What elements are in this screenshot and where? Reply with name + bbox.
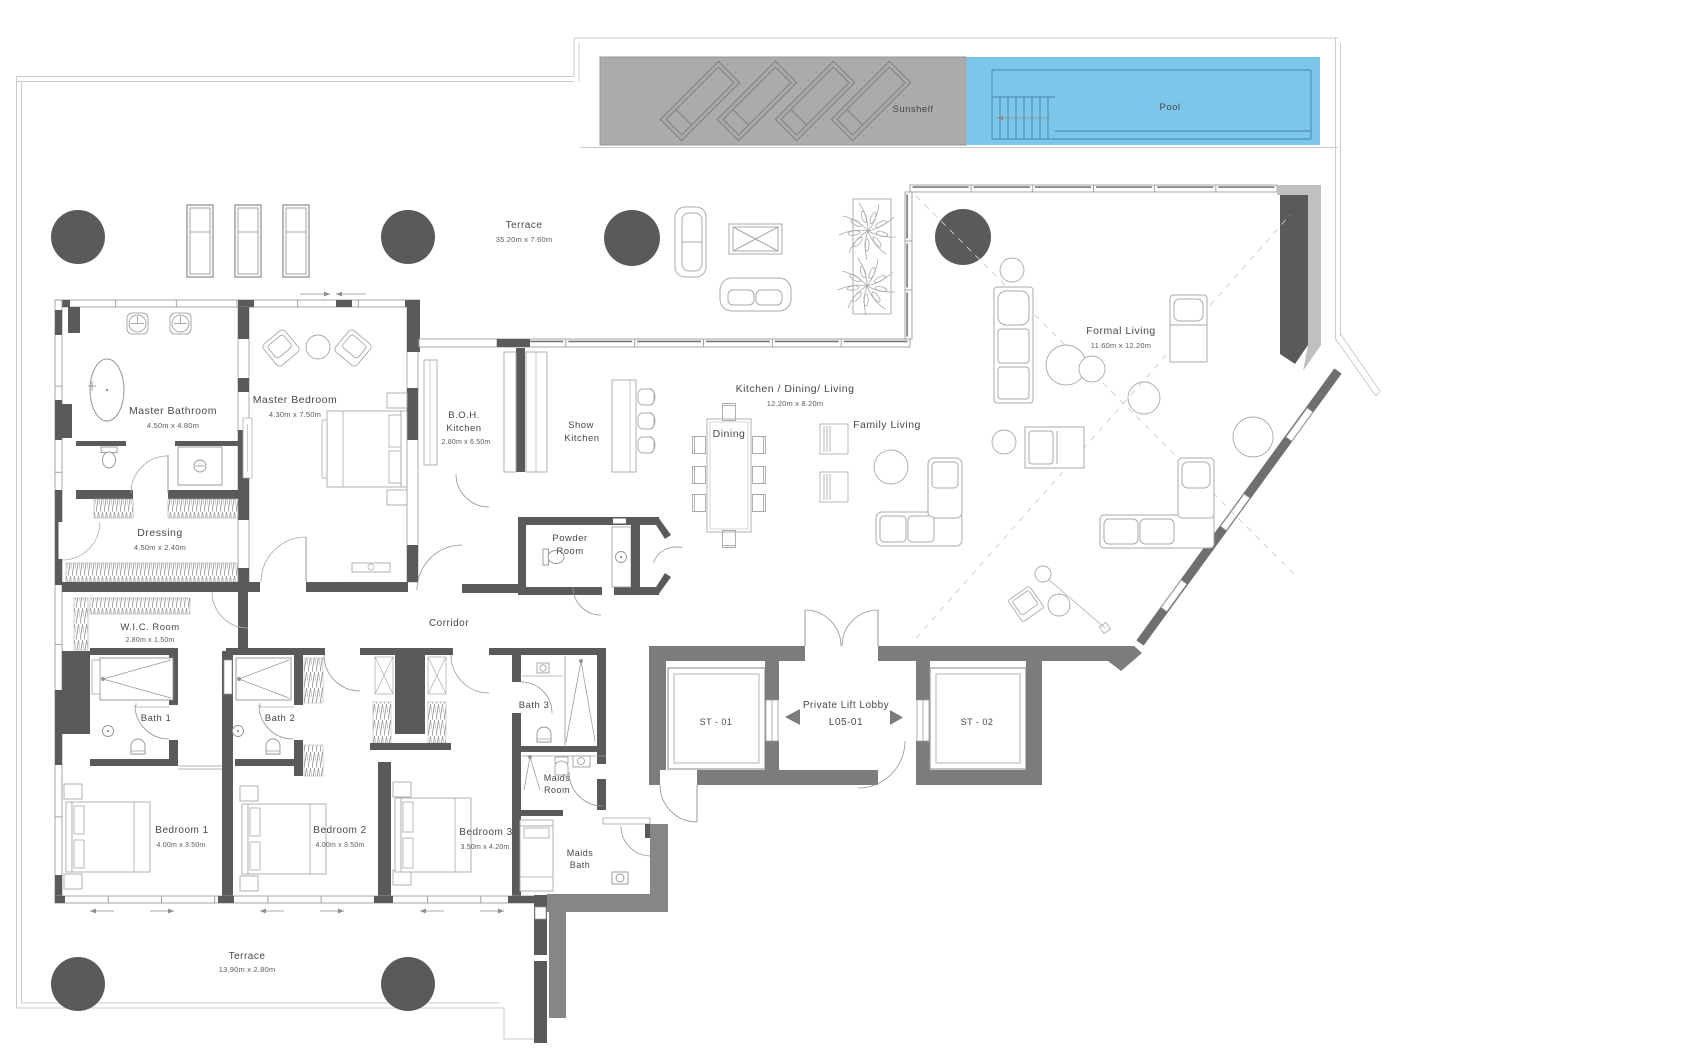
svg-text:Corridor: Corridor: [429, 618, 469, 629]
svg-text:Private Lift Lobby: Private Lift Lobby: [803, 700, 889, 711]
svg-text:4.30m x 7.50m: 4.30m x 7.50m: [269, 410, 321, 419]
svg-text:Sunshelf: Sunshelf: [893, 104, 934, 115]
svg-text:Terrace: Terrace: [506, 220, 543, 231]
svg-text:Kitchen: Kitchen: [564, 433, 599, 444]
svg-text:2.80m x 1.50m: 2.80m x 1.50m: [126, 637, 175, 644]
svg-text:Kitchen / Dining/ Living: Kitchen / Dining/ Living: [736, 383, 855, 395]
svg-text:Bath 1: Bath 1: [141, 713, 171, 724]
svg-text:Family Living: Family Living: [853, 419, 921, 431]
svg-text:35.20m x 7.60m: 35.20m x 7.60m: [496, 235, 553, 244]
svg-text:Show: Show: [568, 420, 594, 431]
svg-text:Master Bedroom: Master Bedroom: [253, 394, 338, 406]
svg-text:3.50m x 4.20m: 3.50m x 4.20m: [461, 844, 510, 851]
svg-text:2.80m x 6.50m: 2.80m x 6.50m: [442, 439, 491, 446]
svg-text:Pool: Pool: [1159, 102, 1180, 113]
svg-text:Room: Room: [544, 785, 570, 795]
svg-text:W.I.C. Room: W.I.C. Room: [120, 622, 179, 633]
svg-text:Terrace: Terrace: [229, 951, 266, 962]
svg-text:4.00m x 3.50m: 4.00m x 3.50m: [316, 842, 365, 849]
svg-text:Bath 3: Bath 3: [519, 700, 549, 711]
svg-text:13,90m x 2.80m: 13,90m x 2.80m: [219, 965, 276, 974]
svg-text:Bedroom 2: Bedroom 2: [313, 825, 366, 836]
svg-text:Bath 2: Bath 2: [265, 713, 295, 724]
svg-text:Bath: Bath: [570, 860, 591, 870]
svg-text:4.50m x 2.40m: 4.50m x 2.40m: [134, 543, 186, 552]
svg-text:4.00m x 3.50m: 4.00m x 3.50m: [157, 842, 206, 849]
svg-text:Maids: Maids: [567, 848, 594, 858]
svg-text:Master Bathroom: Master Bathroom: [129, 405, 217, 417]
svg-text:11.60m x 12.20m: 11.60m x 12.20m: [1091, 341, 1151, 350]
svg-text:Maids: Maids: [544, 773, 571, 783]
svg-text:ST - 02: ST - 02: [961, 717, 994, 727]
svg-text:Kitchen: Kitchen: [446, 423, 481, 434]
svg-text:Dressing: Dressing: [137, 527, 182, 539]
svg-text:Bedroom 1: Bedroom 1: [155, 825, 208, 836]
svg-text:12.20m x 8.20m: 12.20m x 8.20m: [767, 399, 824, 408]
svg-text:Powder: Powder: [552, 533, 587, 544]
svg-text:L05-01: L05-01: [829, 717, 863, 728]
svg-text:Bedroom 3: Bedroom 3: [459, 827, 512, 838]
svg-text:B.O.H.: B.O.H.: [448, 410, 480, 421]
svg-text:Dining: Dining: [713, 428, 746, 440]
svg-text:ST - 01: ST - 01: [700, 717, 733, 727]
svg-text:Room: Room: [556, 546, 583, 557]
svg-text:Formal Living: Formal Living: [1086, 325, 1156, 337]
svg-text:4.50m x 4.80m: 4.50m x 4.80m: [147, 421, 199, 430]
